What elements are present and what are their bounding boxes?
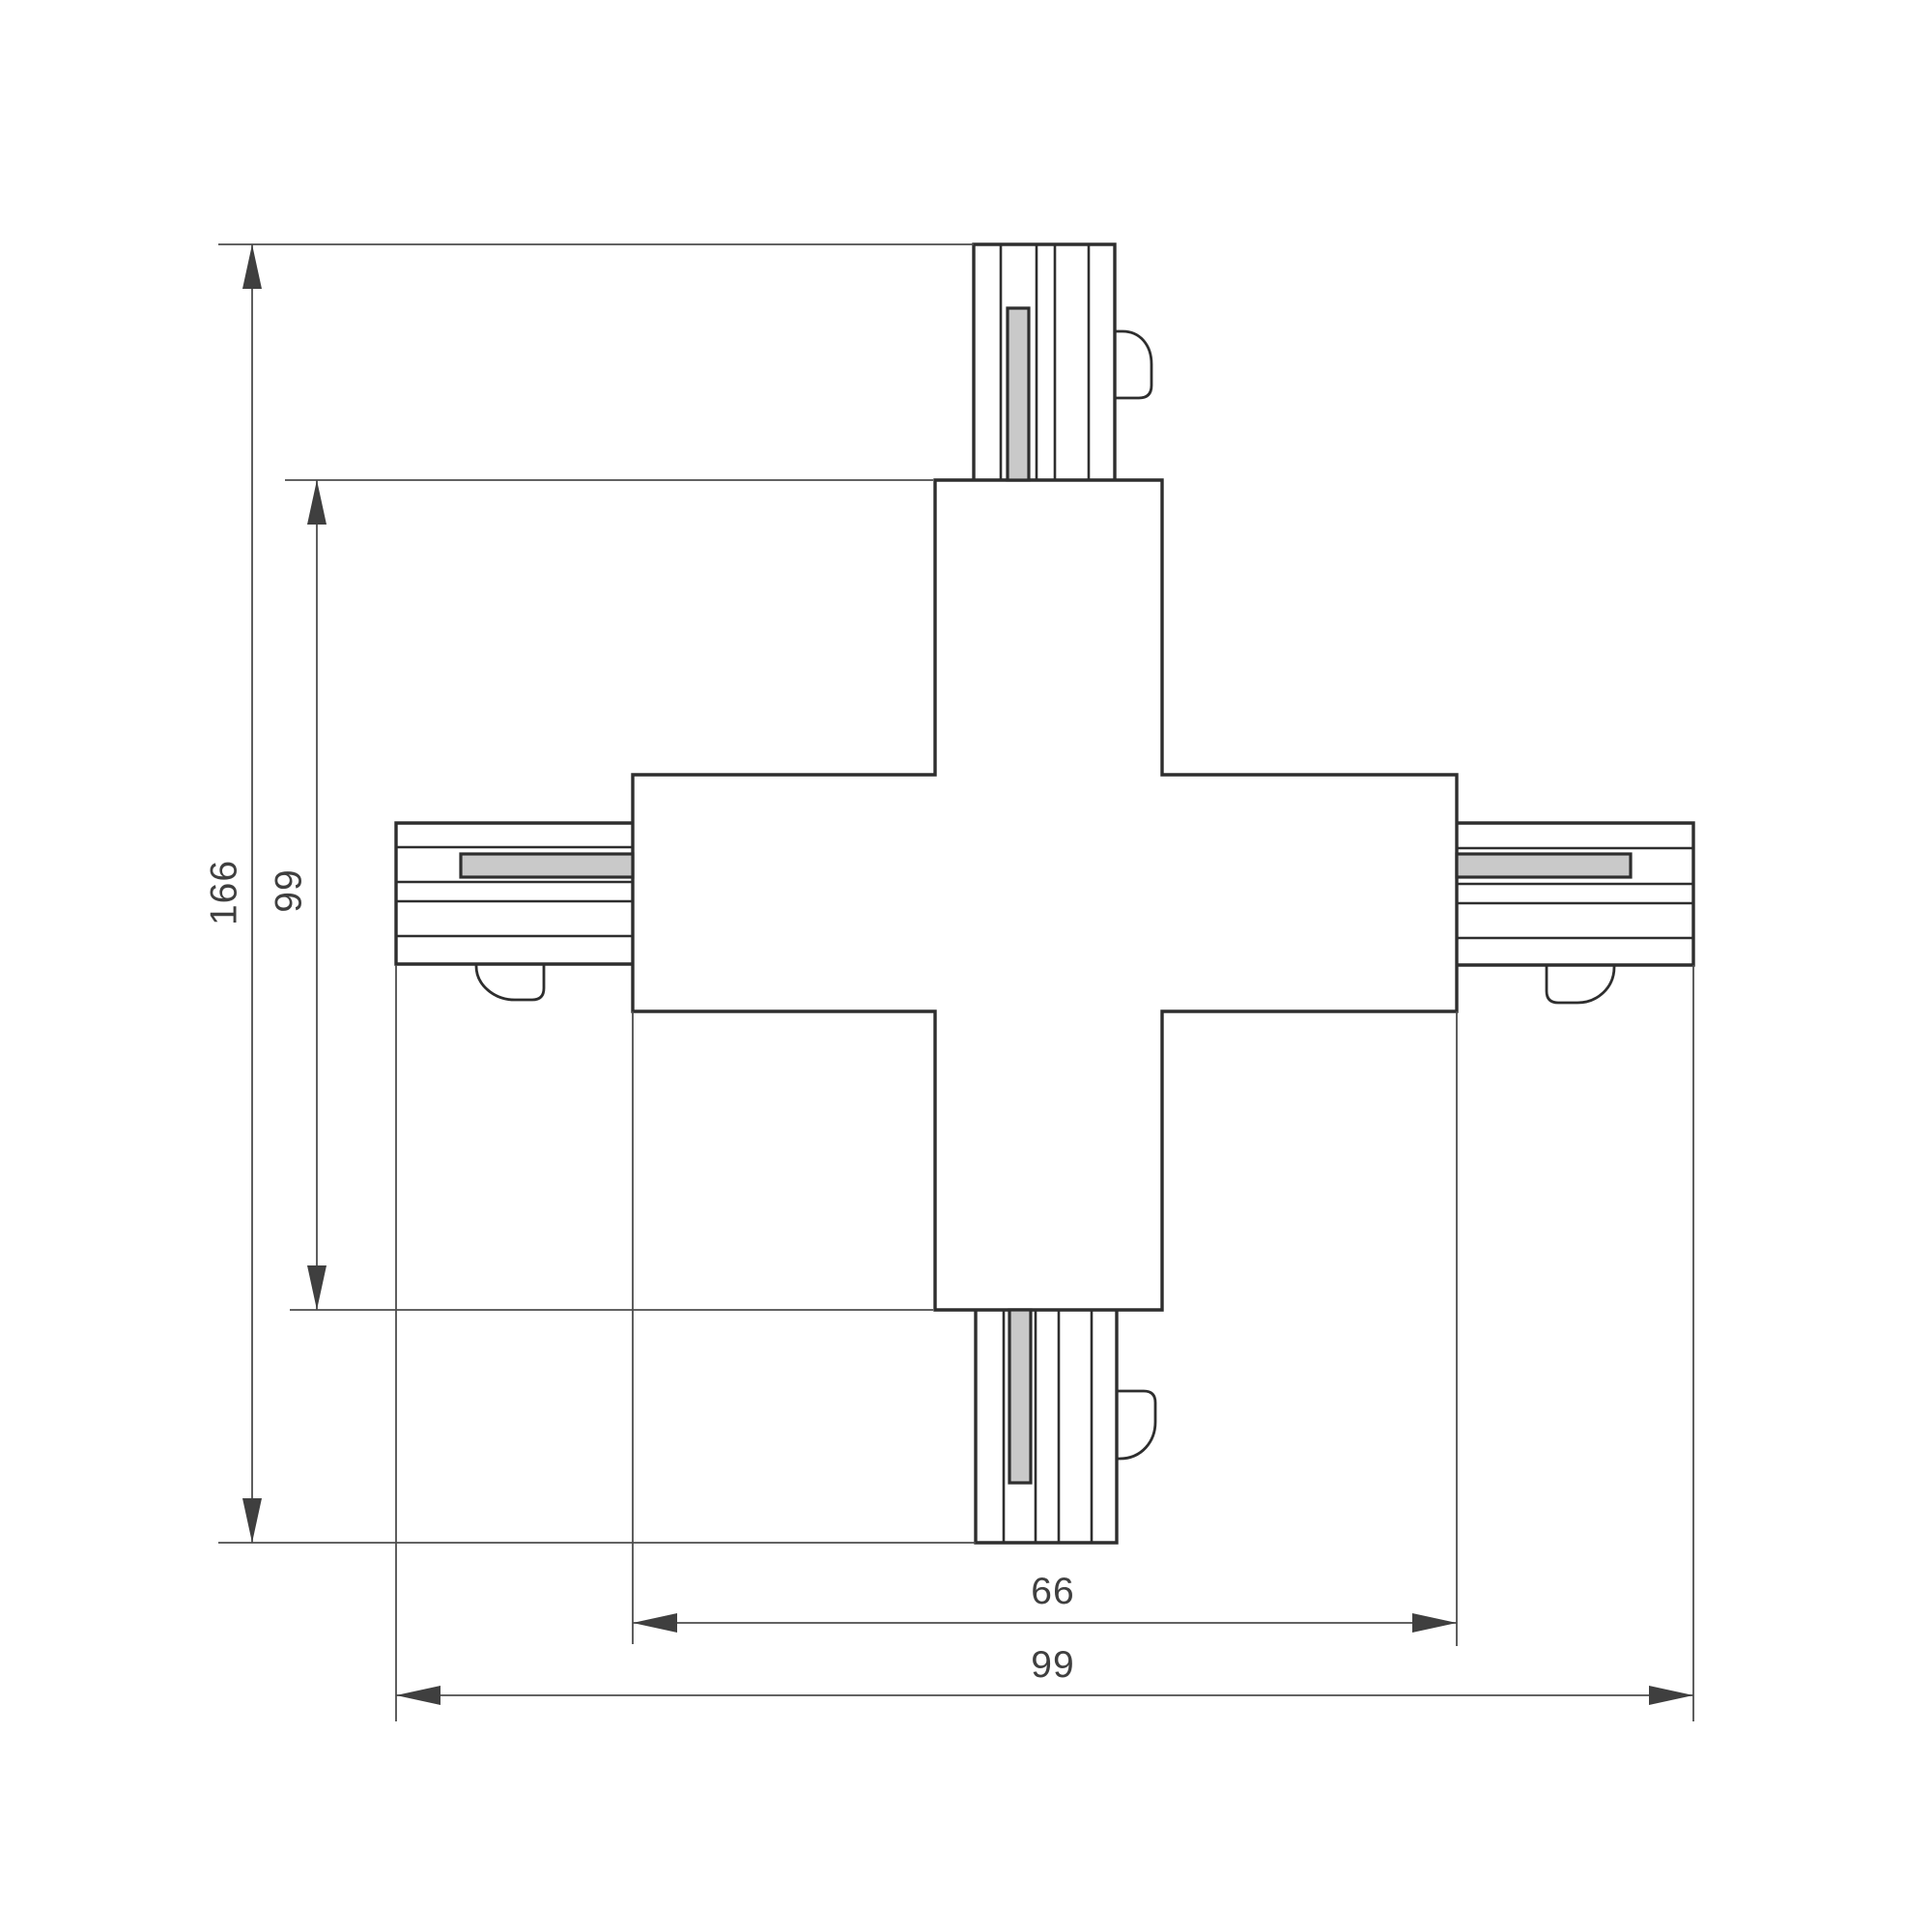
drawing-canvas: 166 99 66 99 bbox=[0, 0, 1932, 1932]
dim-label-body-width: 66 bbox=[1031, 1571, 1074, 1612]
contact-bar bbox=[1009, 1310, 1031, 1483]
contact-bar bbox=[1457, 854, 1631, 877]
contact-bar bbox=[1008, 308, 1029, 480]
contact-bar bbox=[461, 854, 633, 877]
dim-label-overall-height: 166 bbox=[204, 860, 245, 925]
dimension-drawing: 166 99 66 99 bbox=[0, 0, 1932, 1932]
dim-label-body-height: 99 bbox=[269, 868, 310, 912]
dim-label-overall-width: 99 bbox=[1031, 1644, 1074, 1686]
